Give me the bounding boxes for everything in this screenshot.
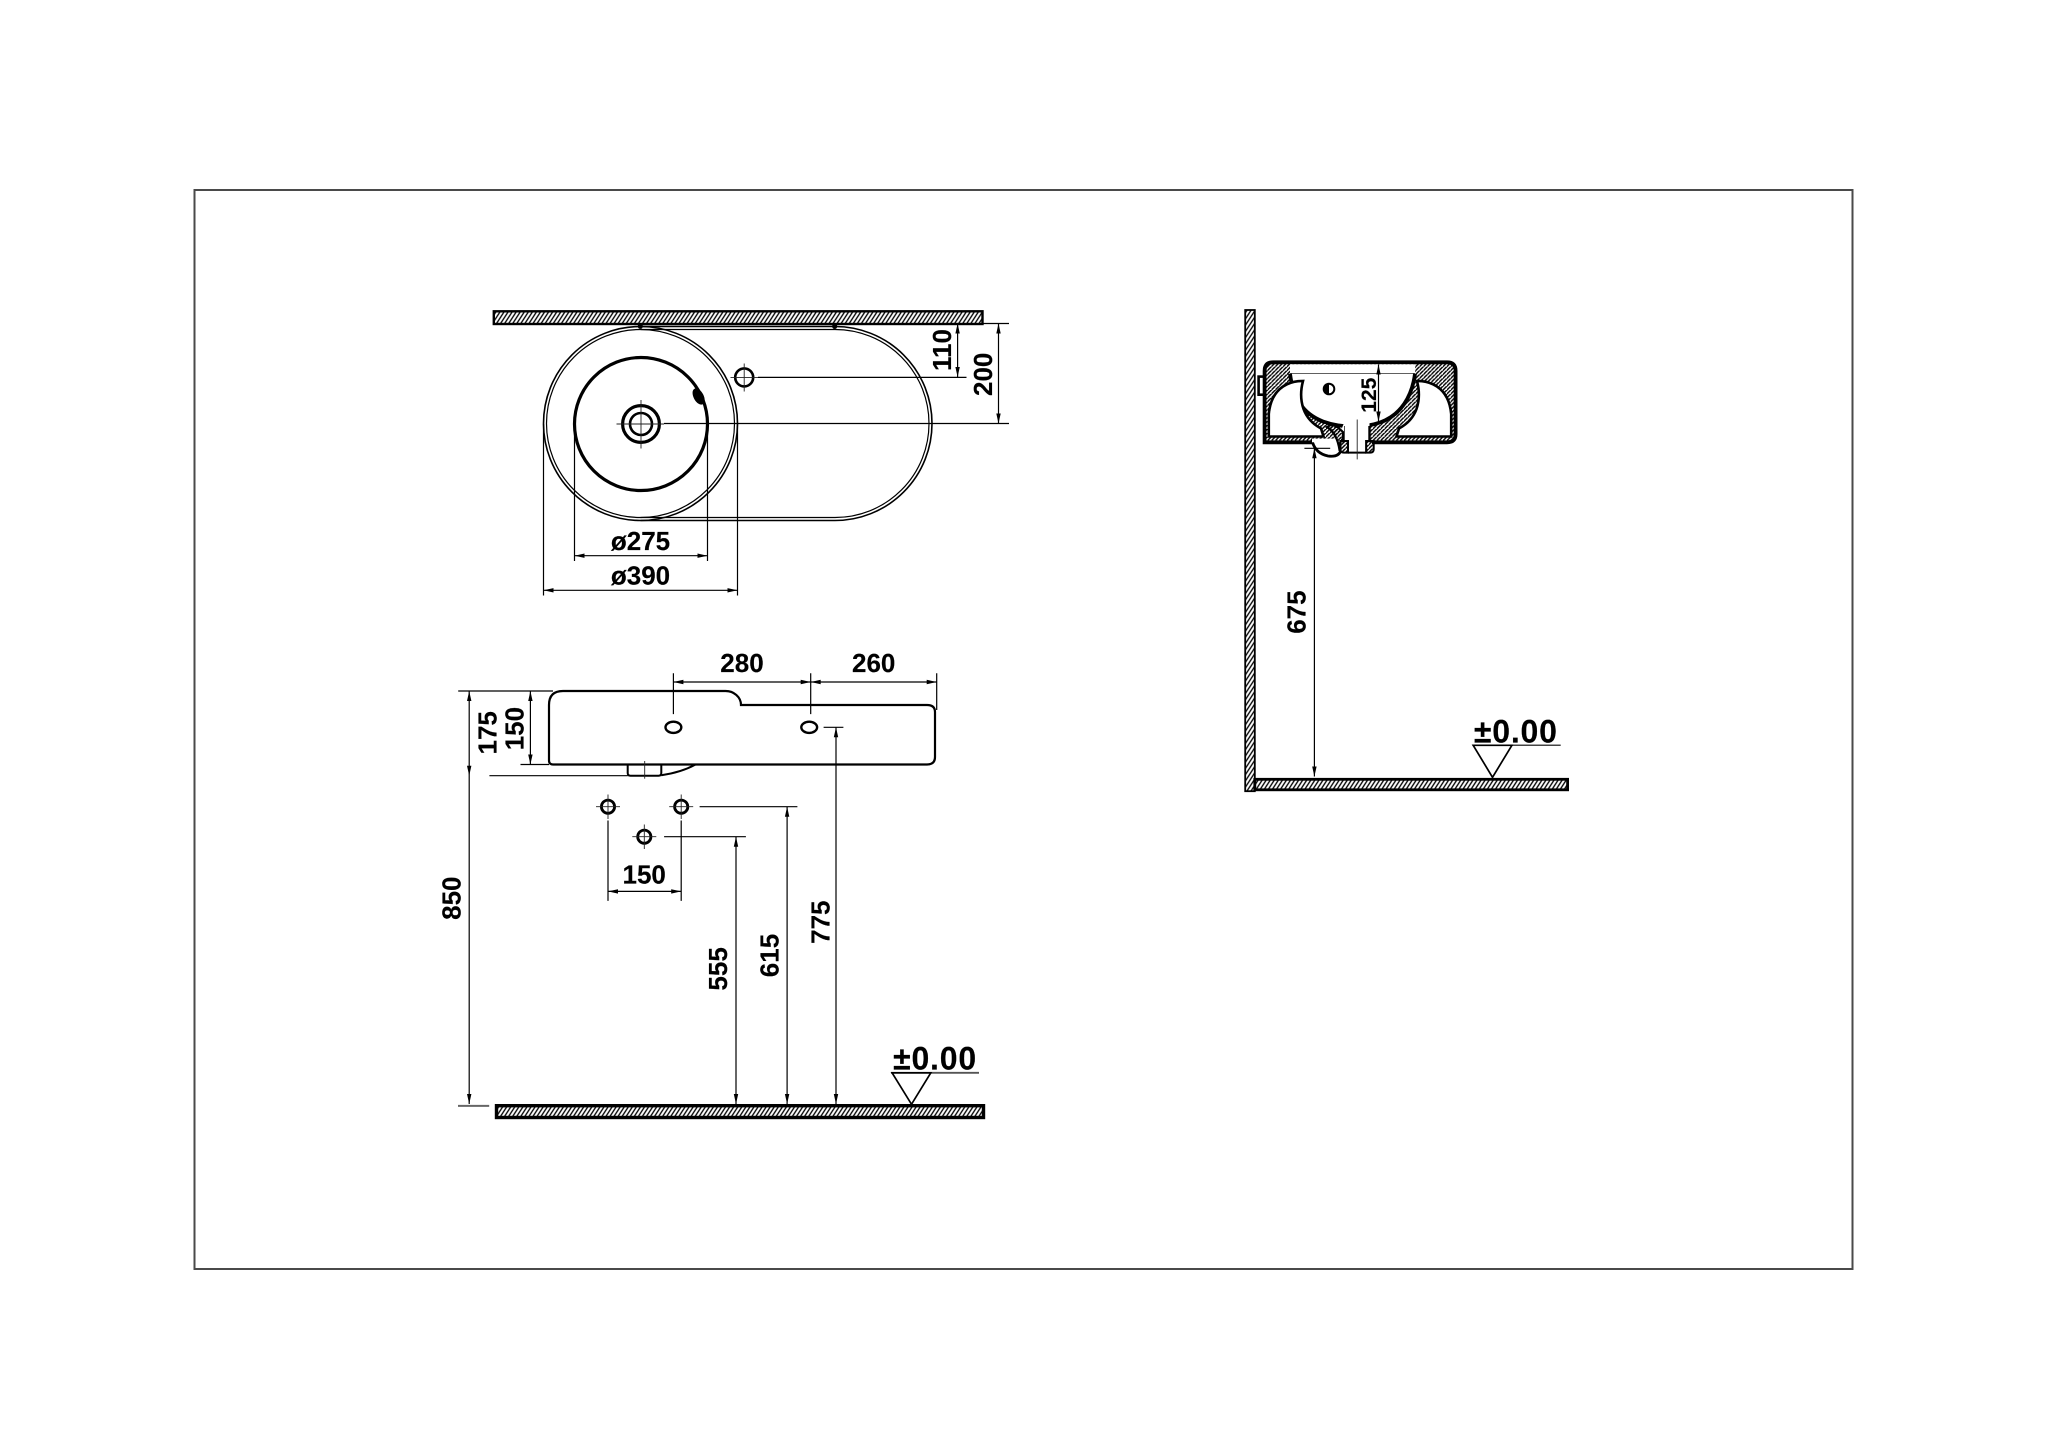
svg-text:ø390: ø390 [611, 561, 670, 591]
svg-text:200: 200 [968, 353, 998, 396]
svg-text:ø275: ø275 [611, 526, 670, 556]
svg-text:110: 110 [927, 329, 957, 371]
svg-text:280: 280 [720, 648, 763, 678]
svg-text:850: 850 [437, 877, 467, 920]
svg-text:125: 125 [1358, 377, 1381, 412]
svg-text:175: 175 [473, 711, 503, 754]
svg-text:775: 775 [806, 901, 836, 944]
svg-text:675: 675 [1281, 590, 1311, 633]
svg-text:±0.00: ±0.00 [893, 1041, 977, 1077]
svg-text:±0.00: ±0.00 [1474, 714, 1558, 750]
svg-text:150: 150 [500, 707, 530, 750]
svg-text:260: 260 [852, 648, 895, 678]
svg-text:555: 555 [703, 947, 733, 990]
svg-text:615: 615 [755, 934, 785, 977]
svg-text:150: 150 [623, 860, 666, 890]
